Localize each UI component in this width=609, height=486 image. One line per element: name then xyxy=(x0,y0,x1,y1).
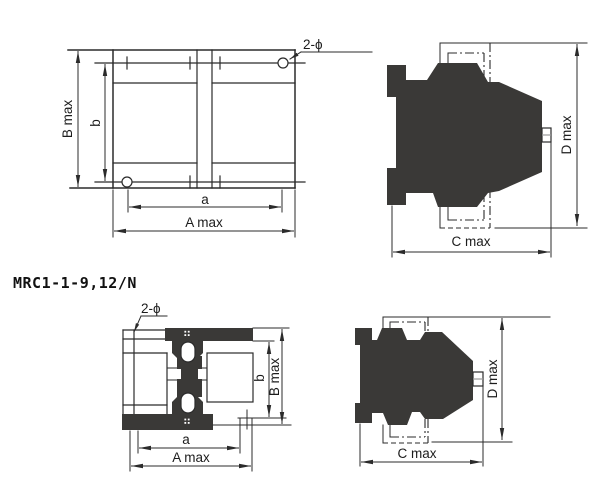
label-b-bottom: b xyxy=(252,374,267,382)
dim-d-max-2: D max xyxy=(485,318,502,440)
side-view-bottom: C max D max xyxy=(355,317,550,466)
side-nub xyxy=(542,128,551,142)
model-title: MRC1-1-9,12/N xyxy=(13,274,137,292)
contactor-side-silhouette-2 xyxy=(355,328,473,425)
front-view-bottom: 2-ϕ b B max a A max xyxy=(122,301,291,471)
coil-notch-right xyxy=(198,369,203,379)
label-2-phi: 2-ϕ xyxy=(303,37,323,52)
label-2-phi-bottom: 2-ϕ xyxy=(141,301,161,316)
contactor-side-silhouette xyxy=(387,63,542,207)
label-b-max-bottom: B max xyxy=(267,358,282,397)
label-c-max: C max xyxy=(451,234,490,249)
bottom-terminal-bar xyxy=(122,414,213,430)
label-a-bottom: a xyxy=(182,432,190,447)
label-d-max: D max xyxy=(559,115,574,154)
side-view-top: C max D max xyxy=(387,43,587,257)
front-view-top: B max b a A max 2-ϕ xyxy=(60,37,372,237)
label-a: a xyxy=(201,192,209,207)
mounting-hole-bottom-left xyxy=(122,177,132,187)
front-view-top-outline xyxy=(68,50,305,188)
mounting-hole-top-right xyxy=(278,58,288,68)
side-nub-2 xyxy=(473,372,483,386)
label-d-max-2: D max xyxy=(485,359,500,398)
coil-notch-left xyxy=(177,369,182,379)
technical-drawing-page: B max b a A max 2-ϕ xyxy=(0,0,609,486)
phantom-block-top-2 xyxy=(383,317,550,341)
armature-capsule-top xyxy=(181,342,195,362)
label-b: b xyxy=(88,119,103,127)
dim-b-max: B max xyxy=(60,51,78,187)
label-b-max: B max xyxy=(60,100,75,139)
callout-holes-bottom: 2-ϕ xyxy=(134,301,167,332)
terminal-screw-ticks xyxy=(127,57,220,188)
right-contact-block xyxy=(207,353,253,402)
armature-capsule-bottom xyxy=(181,393,195,413)
label-a-max-bottom: A max xyxy=(172,450,210,465)
callout-holes: 2-ϕ xyxy=(290,37,372,59)
dimension-drawing: B max b a A max 2-ϕ xyxy=(0,0,609,486)
left-terminal-outline xyxy=(123,330,167,417)
top-terminal-bar xyxy=(165,328,253,341)
dim-b: b xyxy=(88,64,105,181)
dim-d-max: D max xyxy=(559,44,577,226)
dim-b-bottomview: b B max xyxy=(213,328,291,429)
dim-a: a xyxy=(128,190,282,212)
label-a-max: A max xyxy=(185,215,223,230)
label-c-max-2: C max xyxy=(397,446,436,461)
